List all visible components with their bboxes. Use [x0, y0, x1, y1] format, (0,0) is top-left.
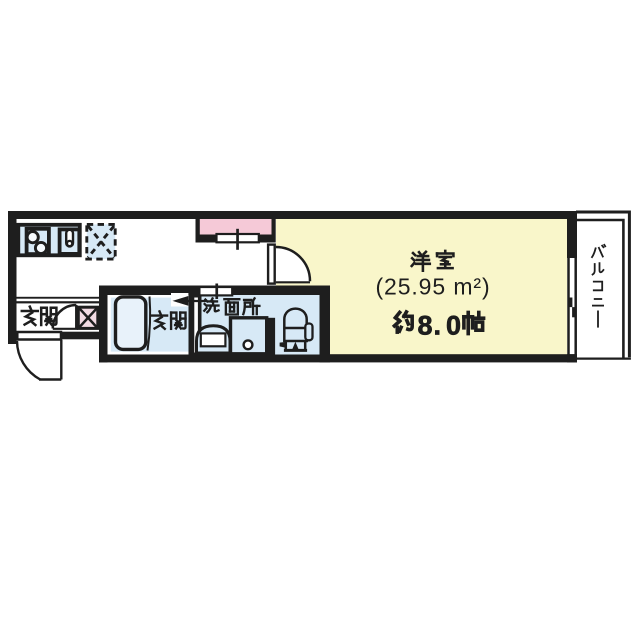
svg-text:.: .	[434, 311, 442, 341]
svg-text:8: 8	[418, 311, 433, 341]
svg-text:(25.95 m²): (25.95 m²)	[375, 274, 490, 300]
svg-text:0: 0	[446, 311, 461, 341]
